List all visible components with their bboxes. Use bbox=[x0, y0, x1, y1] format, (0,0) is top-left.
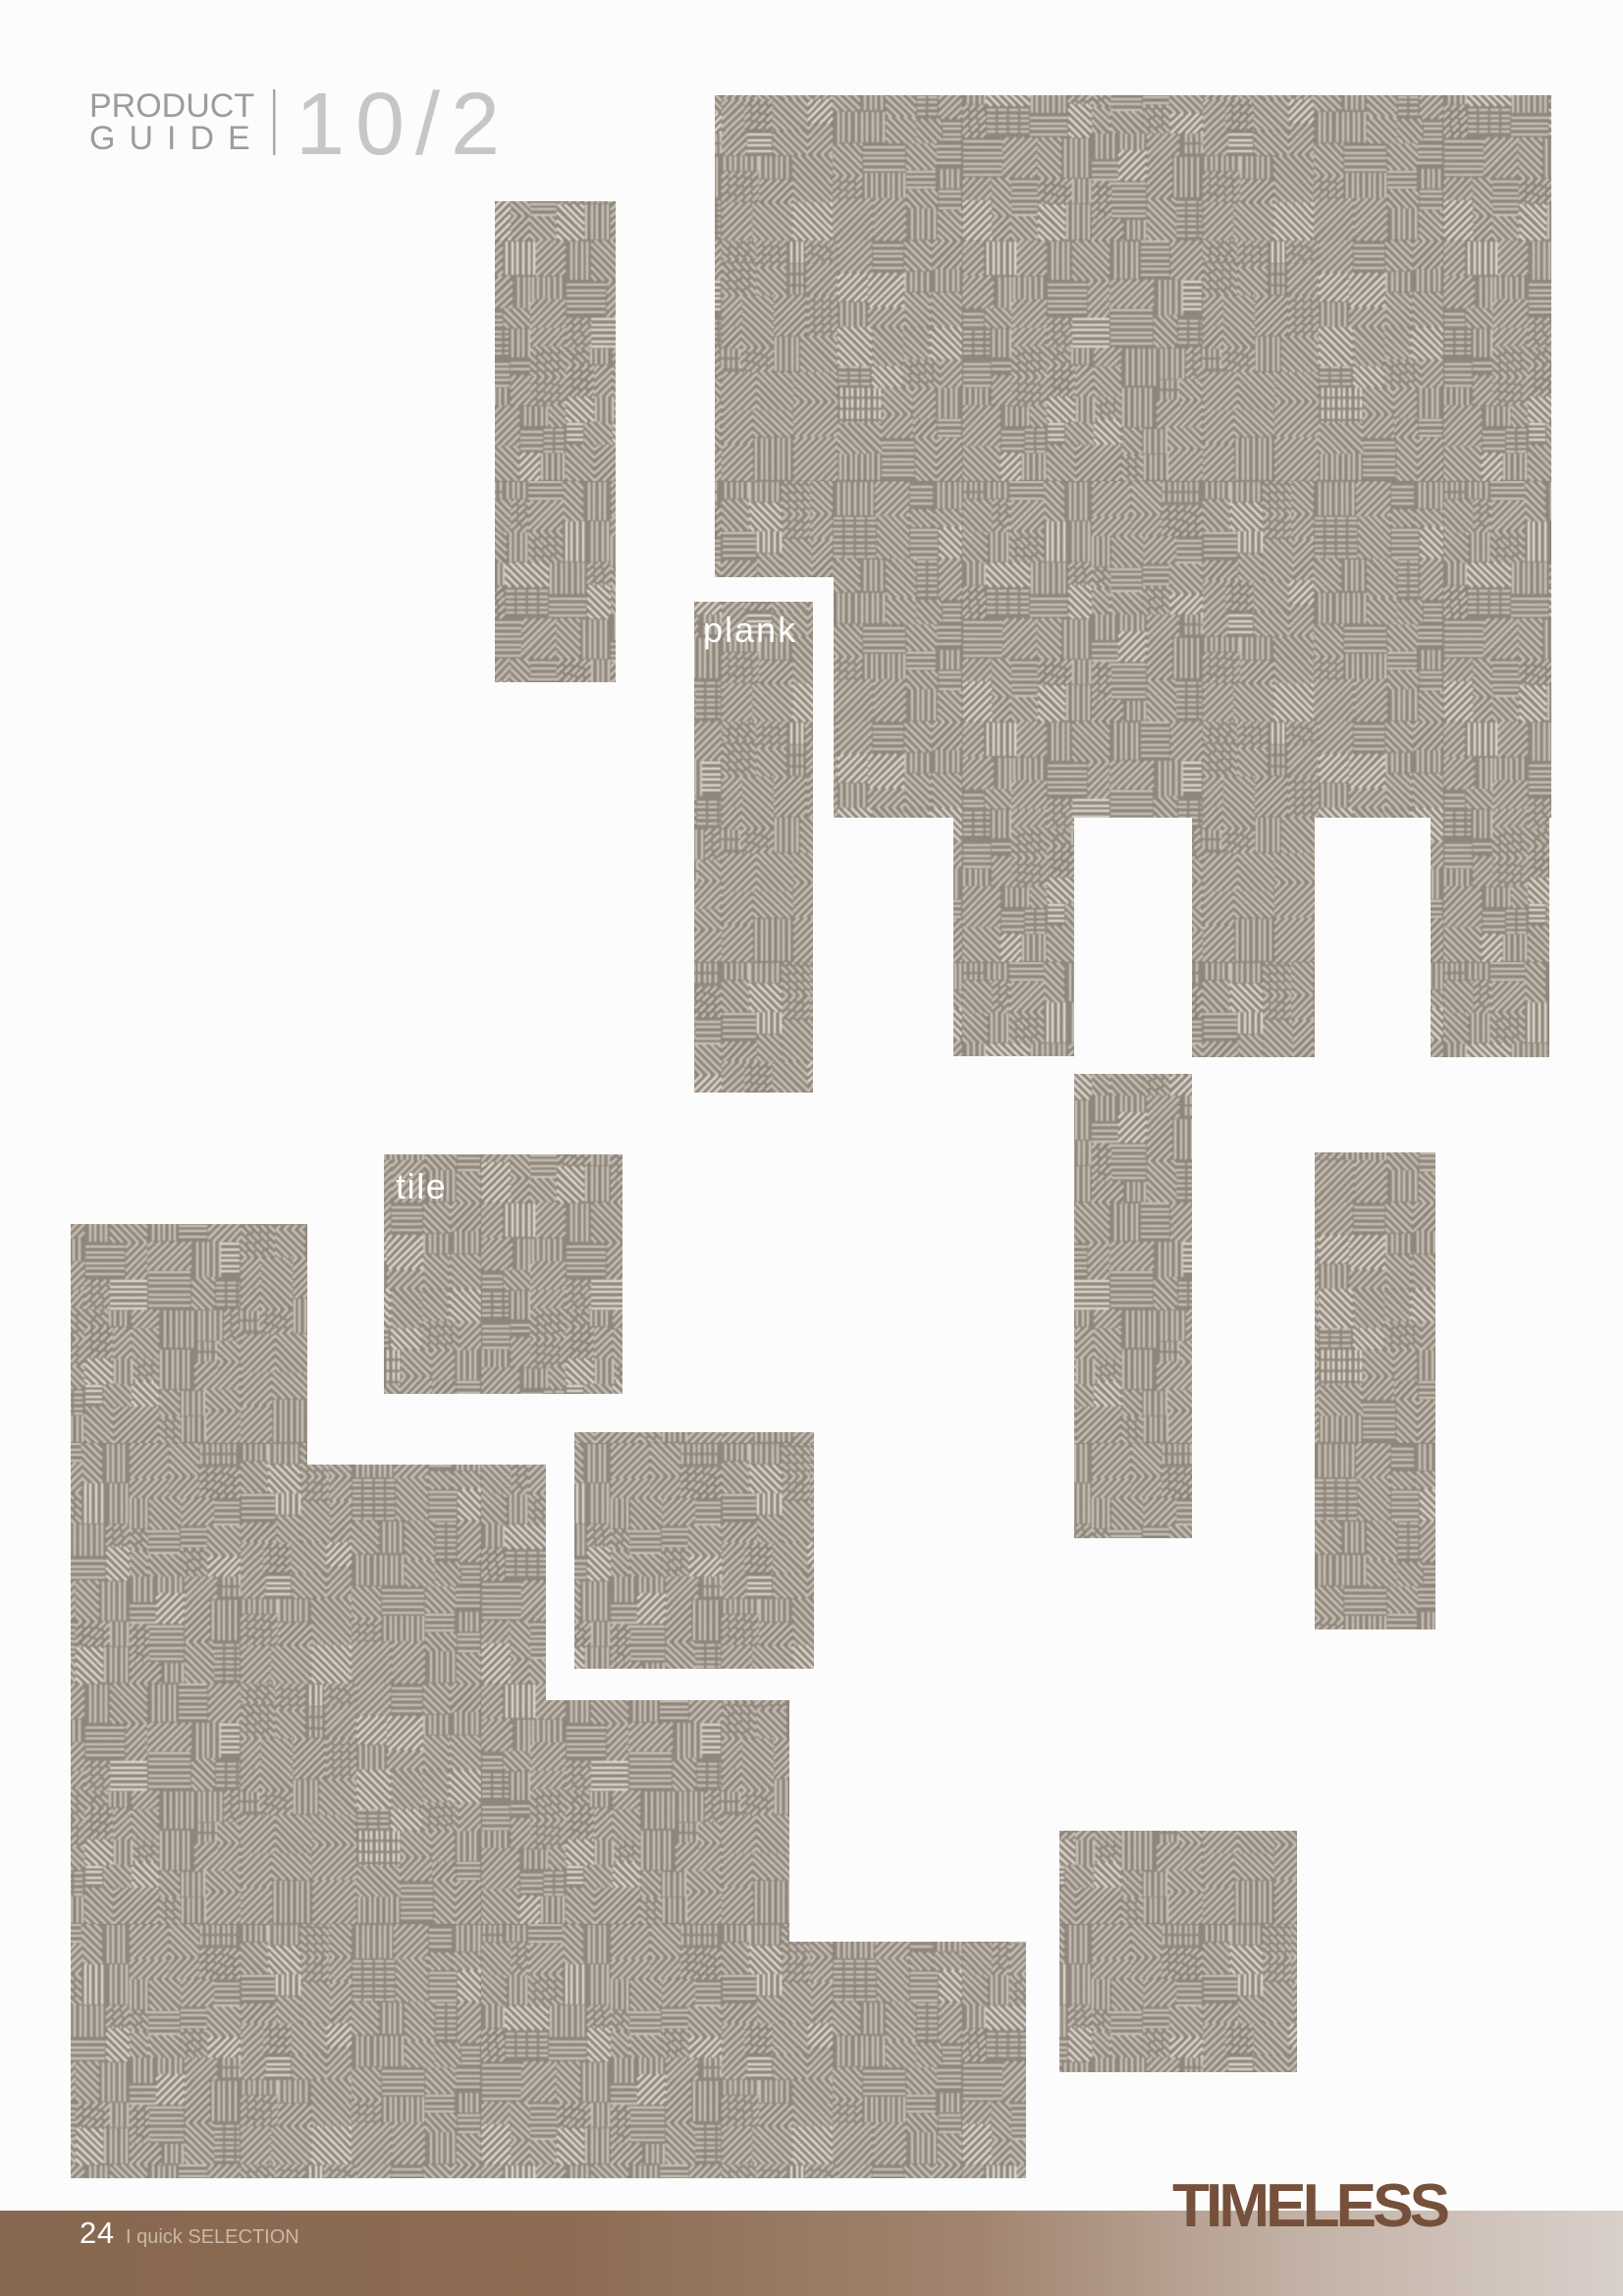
svg-text:TIMELESS: TIMELESS bbox=[1172, 2172, 1450, 2240]
svg-text:GUIDE: GUIDE bbox=[89, 120, 264, 157]
svg-text:10/2: 10/2 bbox=[296, 76, 500, 174]
svg-text:I quick SELECTION: I quick SELECTION bbox=[126, 2226, 299, 2248]
svg-text:plank: plank bbox=[703, 610, 797, 650]
svg-text:24: 24 bbox=[80, 2216, 115, 2250]
svg-text:tile: tile bbox=[396, 1166, 447, 1206]
